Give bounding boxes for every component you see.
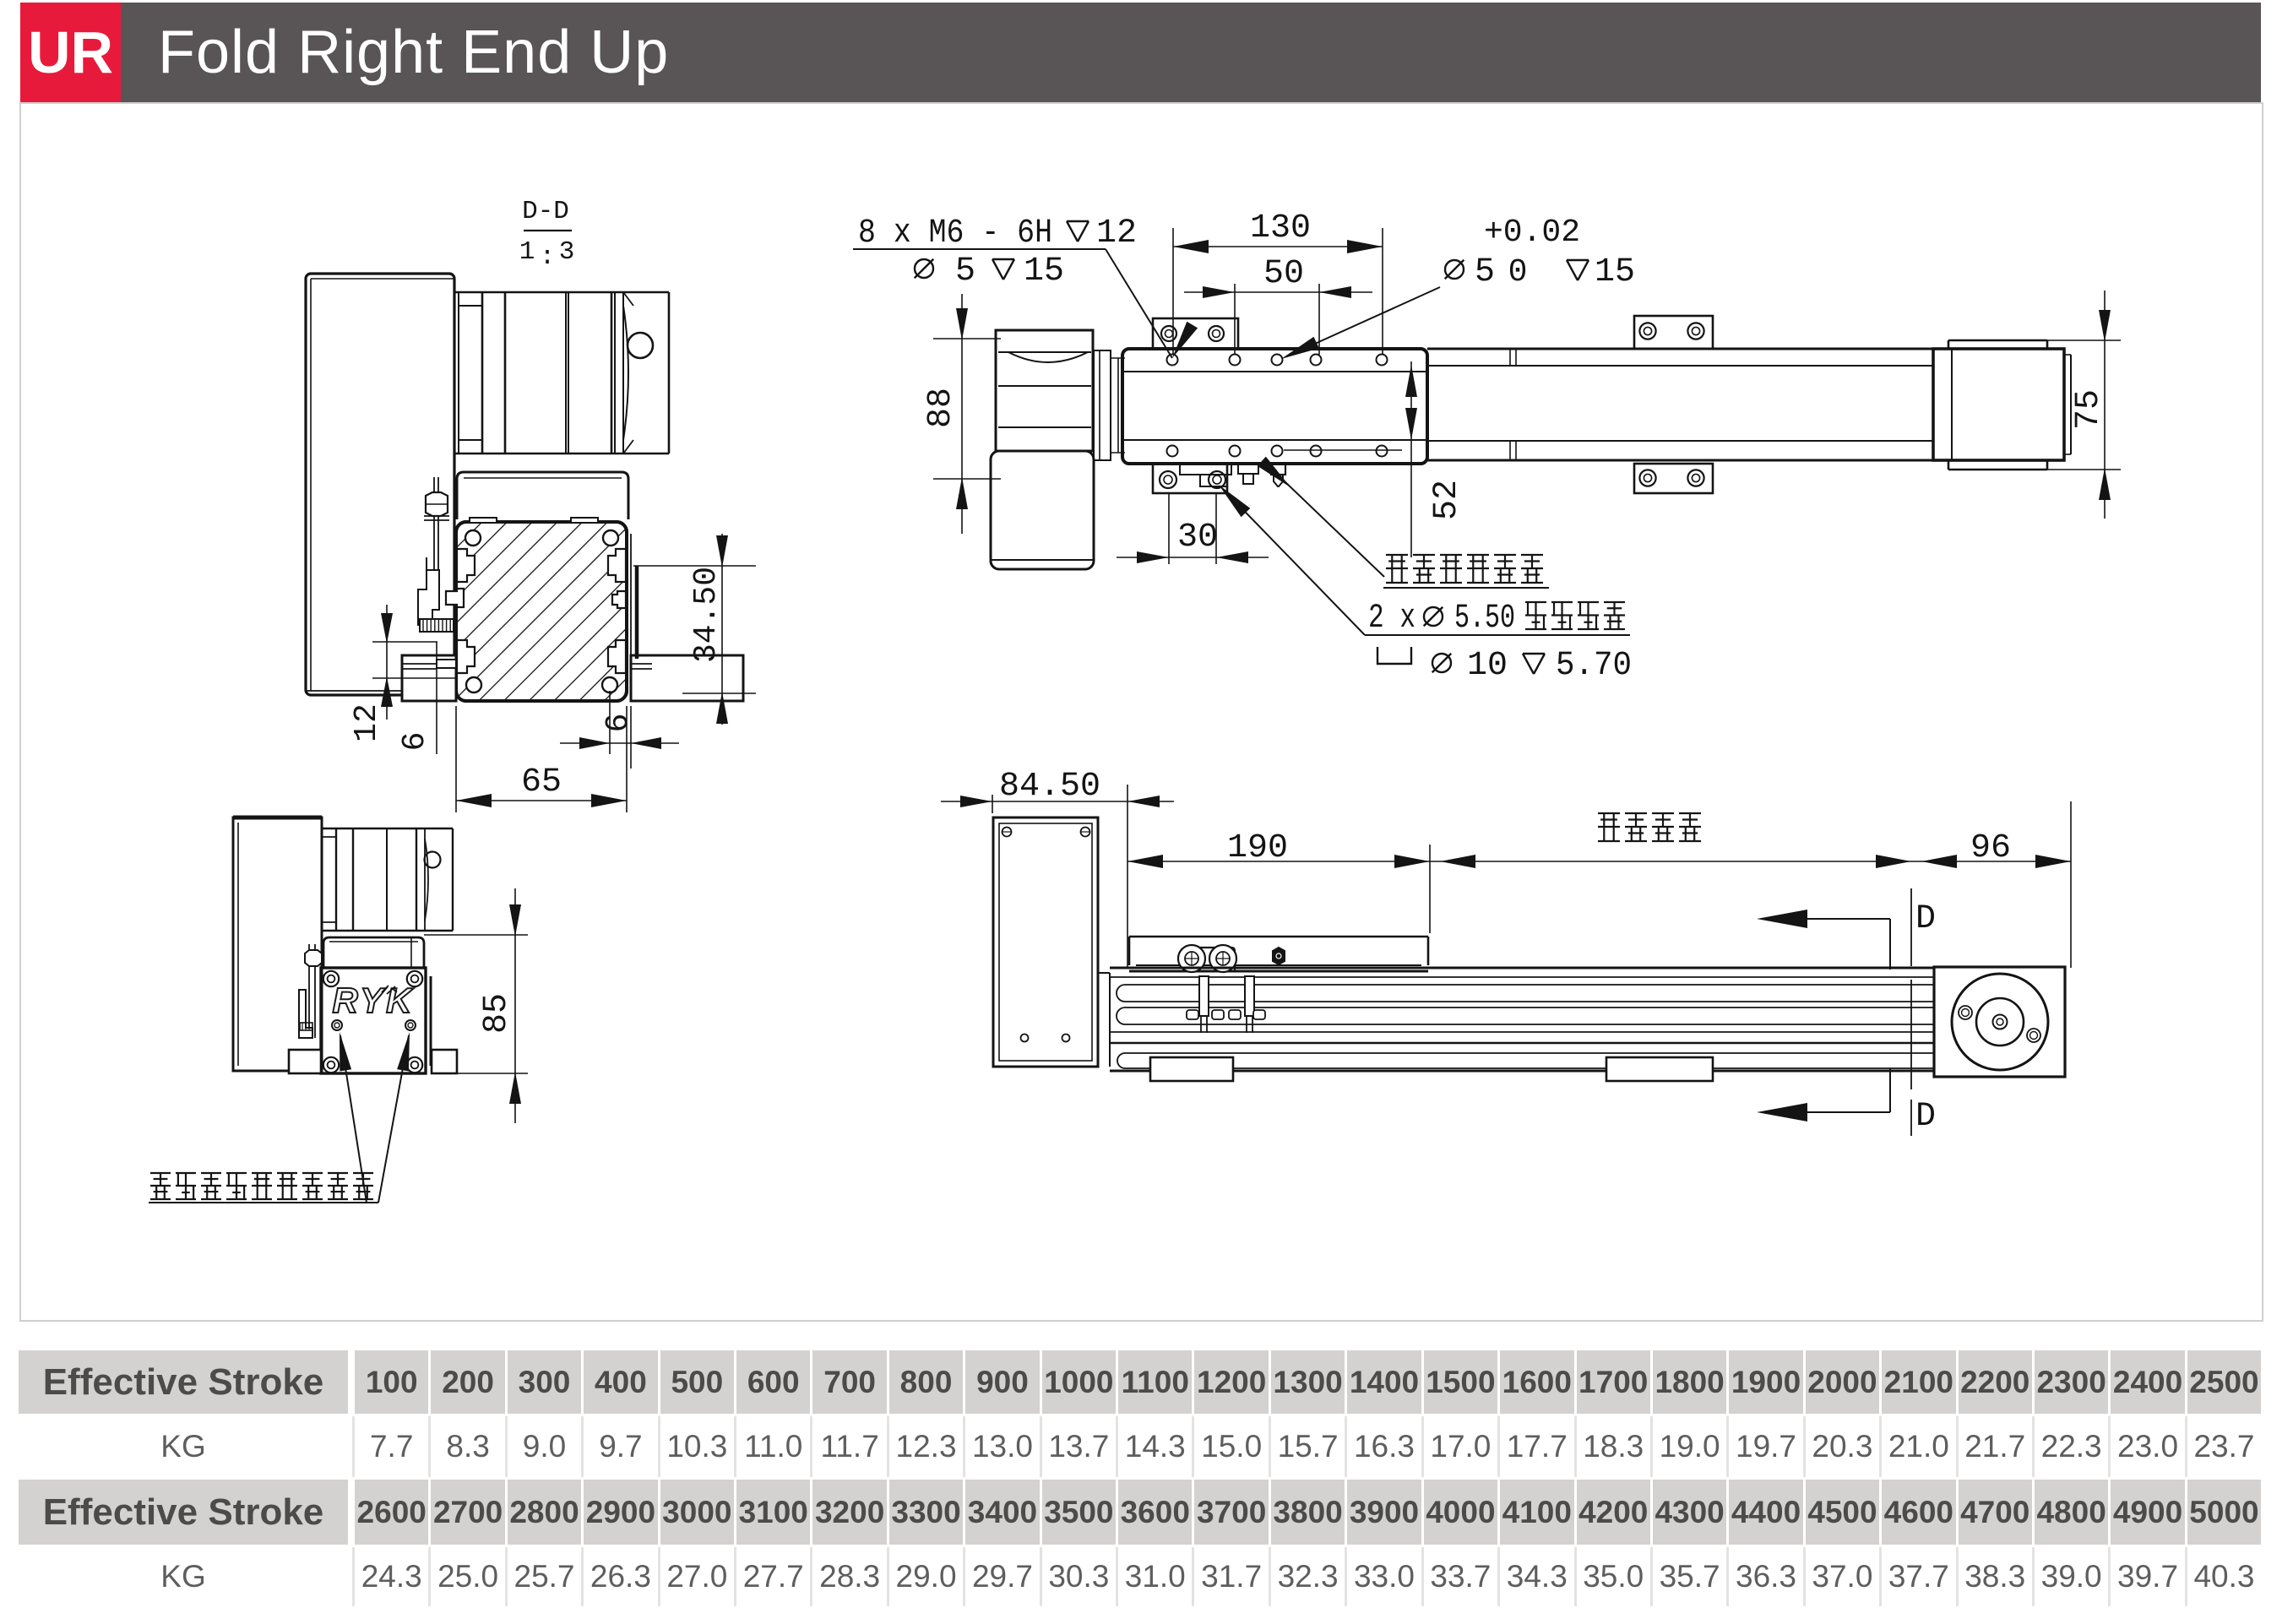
svg-text:85: 85: [478, 993, 516, 1034]
svg-text:75: 75: [2070, 389, 2108, 430]
svg-text:D: D: [1915, 900, 1936, 938]
svg-text:6: 6: [397, 732, 433, 752]
svg-text:D: D: [1915, 1098, 1936, 1136]
svg-text:52: 52: [1428, 480, 1466, 520]
svg-text:50: 50: [1263, 255, 1304, 293]
svg-text:5: 5: [1475, 253, 1495, 291]
svg-text:15: 15: [1595, 253, 1635, 291]
svg-text:0: 0: [1508, 254, 1528, 291]
svg-text::: :: [540, 242, 556, 272]
svg-text:2 x: 2 x: [1368, 600, 1415, 638]
svg-text:65: 65: [521, 763, 562, 801]
svg-text:130: 130: [1250, 209, 1311, 247]
svg-text:12: 12: [349, 703, 385, 742]
svg-text:RYK: RYK: [333, 980, 415, 1020]
svg-text:5: 5: [955, 253, 975, 291]
svg-text:+0.02: +0.02: [1484, 215, 1580, 251]
svg-text:5.50: 5.50: [1454, 600, 1515, 638]
svg-text:D-D: D-D: [522, 197, 569, 226]
svg-text:8 x M6 - 6H: 8 x M6 - 6H: [858, 215, 1052, 253]
svg-text:15: 15: [1024, 253, 1064, 291]
svg-text:5.70: 5.70: [1556, 647, 1632, 685]
svg-text:10: 10: [1467, 647, 1508, 685]
svg-text:1: 1: [519, 237, 535, 267]
svg-text:84.50: 84.50: [999, 768, 1100, 806]
svg-text:88: 88: [922, 388, 960, 428]
svg-text:12: 12: [1096, 215, 1137, 253]
svg-text:3: 3: [559, 237, 575, 267]
svg-text:30: 30: [1177, 519, 1218, 557]
svg-text:34.50: 34.50: [688, 567, 725, 663]
svg-text:6: 6: [600, 714, 637, 733]
